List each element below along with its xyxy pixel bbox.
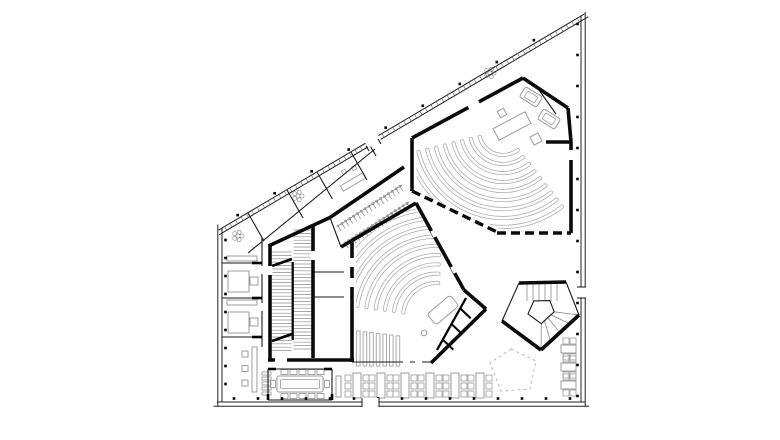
auditorium-small-seating [410,137,562,227]
dashed-roof-outline [490,349,536,391]
page [0,0,780,440]
corner-benches [357,331,400,366]
floor-plan [0,0,780,440]
